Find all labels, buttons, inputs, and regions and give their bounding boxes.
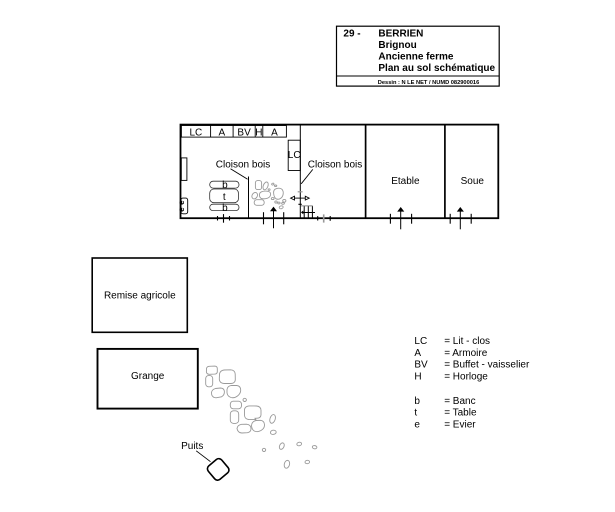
- svg-text:= Armoire: = Armoire: [444, 348, 488, 359]
- svg-text:Plan au sol schématique: Plan au sol schématique: [378, 63, 495, 74]
- svg-text:LC: LC: [414, 336, 427, 347]
- svg-text:Dessin : N LE NET / NUMD 08290: Dessin : N LE NET / NUMD 082900016: [378, 80, 479, 86]
- svg-text:e: e: [414, 419, 420, 430]
- svg-text:e: e: [177, 207, 186, 212]
- svg-text:= Buffet - vaisselier: = Buffet - vaisselier: [444, 360, 530, 371]
- svg-text:Ancienne ferme: Ancienne ferme: [378, 52, 453, 63]
- svg-text:= Banc: = Banc: [444, 396, 475, 407]
- svg-text:A: A: [414, 348, 421, 359]
- svg-text:BV: BV: [237, 127, 251, 138]
- svg-text:A: A: [218, 127, 225, 138]
- svg-text:H: H: [414, 371, 421, 382]
- svg-text:= Evier: = Evier: [444, 419, 476, 430]
- svg-text:Cloison bois: Cloison bois: [308, 160, 362, 171]
- svg-text:e: e: [177, 200, 186, 205]
- svg-text:BV: BV: [414, 360, 428, 371]
- svg-text:A: A: [271, 127, 278, 138]
- svg-text:BERRIEN: BERRIEN: [378, 28, 423, 39]
- svg-text:LC: LC: [288, 150, 301, 161]
- svg-text:t: t: [414, 408, 417, 419]
- svg-text:Soue: Soue: [461, 176, 485, 187]
- svg-text:b: b: [222, 203, 228, 214]
- svg-text:= Table: = Table: [444, 408, 477, 419]
- svg-text:Grange: Grange: [131, 371, 165, 382]
- svg-text:H: H: [255, 127, 262, 138]
- svg-text:29 -: 29 -: [343, 28, 360, 39]
- svg-text:Brignou: Brignou: [378, 40, 416, 51]
- svg-text:Etable: Etable: [391, 176, 420, 187]
- svg-text:= Lit - clos: = Lit - clos: [444, 336, 490, 347]
- svg-text:b: b: [414, 396, 420, 407]
- svg-text:LC: LC: [190, 127, 203, 138]
- svg-text:t: t: [223, 192, 226, 203]
- svg-text:= Horloge: = Horloge: [444, 371, 488, 382]
- svg-text:Puits: Puits: [181, 441, 203, 452]
- svg-text:Remise agricole: Remise agricole: [104, 290, 176, 301]
- svg-text:Cloison bois: Cloison bois: [216, 160, 270, 171]
